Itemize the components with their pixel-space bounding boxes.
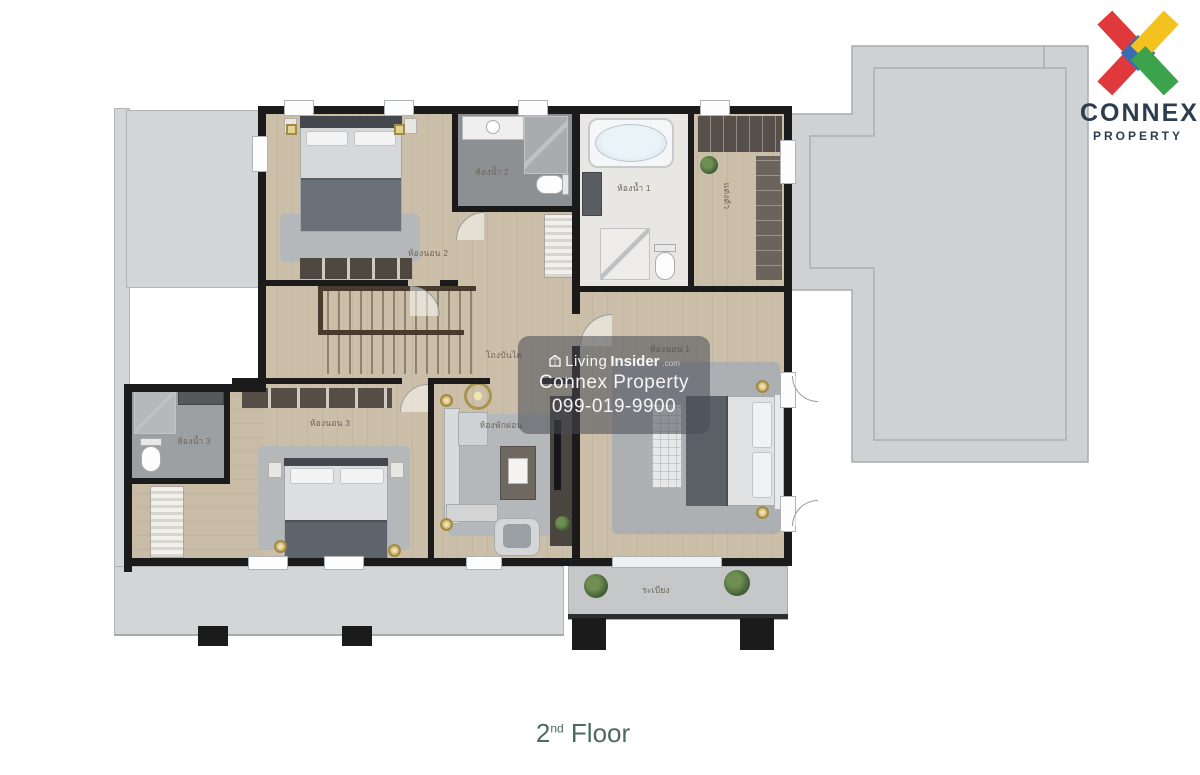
balcony-plant-left: [584, 574, 608, 598]
dressing-plant: [700, 156, 718, 174]
bedroom2-wardrobe: [300, 258, 412, 279]
wall-bedroom3-right: [428, 378, 434, 566]
family-armchair-seat: [503, 524, 531, 548]
bedroom2-wall-light-right: [394, 124, 405, 135]
wall-bath2-left: [452, 106, 458, 212]
watermark-living: Living: [565, 353, 607, 370]
wall-bedroom2-bottom-a: [258, 280, 408, 286]
wall-lower-top-a: [232, 378, 402, 384]
hall-chandelier: [464, 382, 492, 410]
window-top-2: [384, 100, 414, 116]
room-label-balcony: ระเบียง: [642, 583, 670, 597]
window-top-4: [700, 100, 730, 116]
wall-bath2-bottom: [452, 206, 578, 212]
family-plant: [555, 516, 570, 531]
window-left-bedroom2: [252, 136, 268, 172]
bedroom2-blanket: [301, 178, 401, 231]
bedroom3-pillow-right: [340, 468, 384, 484]
balcony-sliding-door: [612, 556, 722, 568]
floorplan-image: ห้องนอน 2 ห้องน้ำ 2 ห้องน้ำ 1 แต่งตัว โถ…: [0, 0, 1200, 775]
stair-railing-top: [318, 286, 476, 291]
watermark-tld: .com: [663, 359, 680, 368]
bedroom3-louver-closet: [150, 486, 184, 558]
floor-suffix: nd: [550, 721, 563, 735]
eave-bottom: [114, 566, 564, 636]
window-bottom-3: [466, 556, 502, 570]
floor-number: 2: [536, 718, 550, 748]
room-label-dressing: แต่งตัว: [720, 183, 734, 209]
brand-tagline: PROPERTY: [1080, 129, 1196, 143]
pier-bottom-2: [342, 626, 372, 646]
connex-x-icon: [1086, 10, 1190, 96]
bathroom2-sink: [486, 120, 500, 134]
wall-master-left-a: [572, 292, 580, 314]
bedroom3-nightstand-right: [390, 462, 404, 478]
bedroom1-headboard: [774, 394, 784, 510]
bathroom1-toilet-tank: [654, 244, 676, 252]
family-sofa-seat: [446, 504, 498, 522]
room-label-stair-hall: โถงบันได: [486, 348, 522, 362]
bathroom2-toilet: [536, 175, 564, 194]
bedroom3-wall-light-left: [274, 540, 287, 553]
window-bottom-2: [324, 556, 364, 570]
bathroom3-toilet-tank: [140, 438, 162, 446]
wall-bedroom2-bottom-b: [440, 280, 458, 286]
bedroom1-pillow-bottom: [752, 452, 772, 498]
wall-bath1-left: [572, 106, 580, 292]
bathroom2-shower: [524, 116, 568, 174]
bathroom3-shower: [134, 390, 176, 434]
window-bottom-1: [248, 556, 288, 570]
family-wall-light-bottom: [440, 518, 453, 531]
floor-caption: 2nd Floor: [433, 718, 733, 749]
bedroom3-headboard: [284, 458, 388, 466]
dressing-wardrobe-top: [698, 116, 782, 152]
roof-right: [782, 40, 1094, 466]
eave-top-left-block: [126, 110, 264, 288]
bathroom1-shower: [600, 228, 650, 280]
bedroom2-pillow-right: [354, 131, 396, 146]
room-label-bathroom3: ห้องน้ำ 3: [177, 434, 211, 448]
family-wall-light-top: [440, 394, 453, 407]
bedroom1-pillow-top: [752, 402, 772, 448]
brand-name: CONNEX: [1080, 101, 1196, 126]
bedroom2-nightstand-right: [404, 118, 417, 134]
bathroom1-bathtub-basin: [595, 124, 667, 162]
room-label-bathroom2: ห้องน้ำ 2: [475, 165, 509, 179]
bedroom3-nightstand-left: [268, 462, 282, 478]
brand-logo: CONNEX PROPERTY: [1080, 10, 1196, 143]
watermark-badge: LivingInsider.com Connex Property 099-01…: [518, 336, 710, 434]
bedroom1-wall-light-top: [756, 380, 769, 393]
stair-railing-left: [318, 286, 323, 335]
bedroom2-pillow-left: [306, 131, 348, 146]
bathroom1-vanity: [582, 172, 602, 216]
watermark-insider: Insider: [610, 353, 659, 370]
bedroom1-wall-light-bottom: [756, 506, 769, 519]
family-table-tray: [508, 458, 528, 484]
wall-bath1-right: [688, 106, 694, 292]
watermark-phone: 099-019-9900: [552, 396, 676, 418]
bedroom2-wall-light-left: [286, 124, 297, 135]
balcony-pier-left: [572, 618, 606, 650]
bathroom2-toilet-tank: [562, 174, 569, 195]
watermark-brand-line: LivingInsider.com: [548, 353, 680, 370]
floor-word: Floor: [571, 718, 630, 748]
stair-railing-mid: [318, 330, 464, 335]
window-top-1: [284, 100, 314, 116]
wall-bath3-bottom: [130, 478, 230, 484]
wall-bath3-right: [224, 384, 230, 484]
pier-bottom-1: [198, 626, 228, 646]
window-right-dressing: [780, 140, 796, 184]
window-top-3: [518, 100, 548, 116]
wall-upper-suite-bottom: [572, 286, 792, 292]
hall-linen-closet: [544, 214, 574, 278]
wall-extension-top: [124, 384, 266, 392]
watermark-company: Connex Property: [539, 372, 689, 394]
balcony-pier-right: [740, 618, 774, 650]
bedroom3-pillow-left: [290, 468, 334, 484]
bedroom2-headboard: [300, 116, 402, 128]
balcony-plant-right: [724, 570, 750, 596]
room-label-bathroom1: ห้องน้ำ 1: [617, 181, 651, 195]
room-label-family: ห้องพักผ่อน: [479, 418, 522, 432]
bedroom3-wall-light-right: [388, 544, 401, 557]
bathroom1-toilet: [655, 252, 675, 280]
room-label-bedroom3: ห้องนอน 3: [310, 416, 350, 430]
bedroom3-blanket: [285, 520, 387, 560]
room-label-bedroom2: ห้องนอน 2: [408, 246, 448, 260]
bathroom3-toilet: [141, 446, 161, 472]
dressing-wardrobe-right: [756, 156, 782, 280]
house-icon: [548, 354, 562, 368]
wall-lower-top-b: [430, 378, 490, 384]
